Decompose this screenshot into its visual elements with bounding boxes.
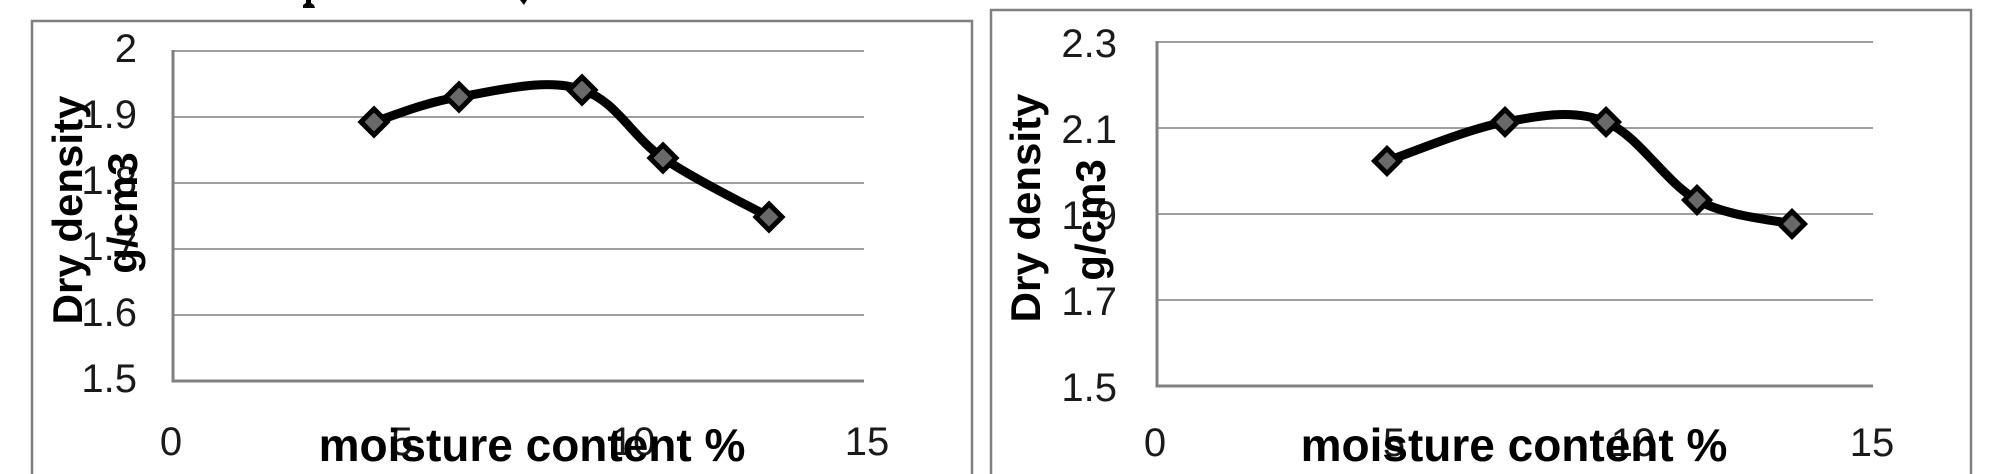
svg-text:g/cm3: g/cm3 — [99, 152, 146, 273]
svg-text:Dry density: Dry density — [1002, 93, 1049, 322]
svg-text:2.1: 2.1 — [1061, 108, 1117, 152]
svg-text:moisture content %: moisture content % — [319, 419, 746, 471]
svg-text:1.5: 1.5 — [81, 357, 137, 401]
svg-text:15: 15 — [845, 420, 890, 464]
svg-text:0: 0 — [160, 420, 182, 464]
svg-text:2: 2 — [115, 27, 137, 71]
svg-text:0: 0 — [1144, 421, 1166, 465]
svg-text:Dry density: Dry density — [44, 95, 91, 324]
svg-text:g/cm3: g/cm3 — [1067, 159, 1114, 280]
svg-text:1.5: 1.5 — [1061, 366, 1117, 410]
svg-text:moisture content %: moisture content % — [1301, 419, 1728, 471]
svg-text:15: 15 — [1850, 421, 1895, 465]
svg-text:1.7: 1.7 — [1061, 280, 1117, 324]
svg-text:2.3: 2.3 — [1061, 22, 1117, 66]
